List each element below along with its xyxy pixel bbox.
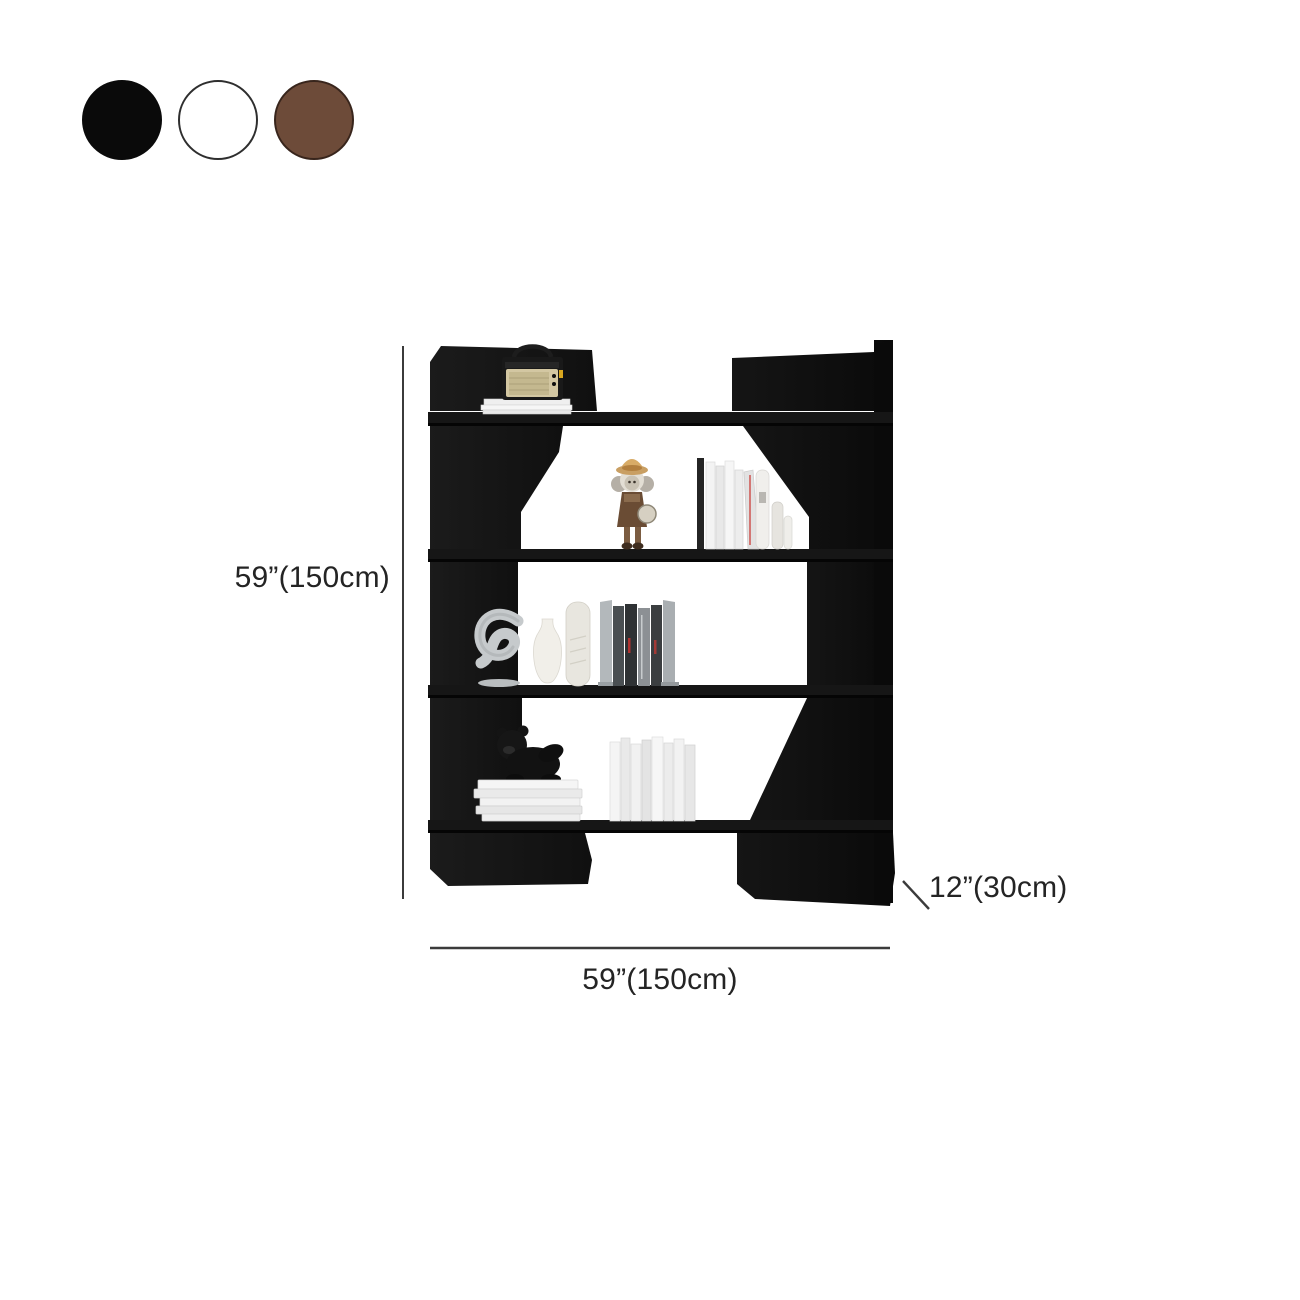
bookshelf-illustration [0, 0, 1300, 1300]
left-panel-upper-diagonal [430, 426, 563, 549]
right-edge-board [874, 343, 893, 903]
doll-decor [611, 459, 656, 550]
right-panel-lower-diagonal [750, 698, 893, 820]
right-panel-bottom-block [737, 833, 895, 906]
left-panel-mid-strip [430, 562, 518, 685]
right-panel-top-block [732, 340, 893, 411]
depth-dimension-label: 12”(30cm) [929, 873, 1068, 903]
width-dimension-label: 59”(150cm) [570, 965, 750, 995]
height-dimension-label: 59”(150cm) [225, 563, 390, 593]
depth-dimension-tick [903, 881, 929, 909]
left-panel-bottom-block [430, 833, 592, 886]
product-diagram-page: 59”(150cm) 59”(150cm) 12”(30cm) [0, 0, 1300, 1300]
